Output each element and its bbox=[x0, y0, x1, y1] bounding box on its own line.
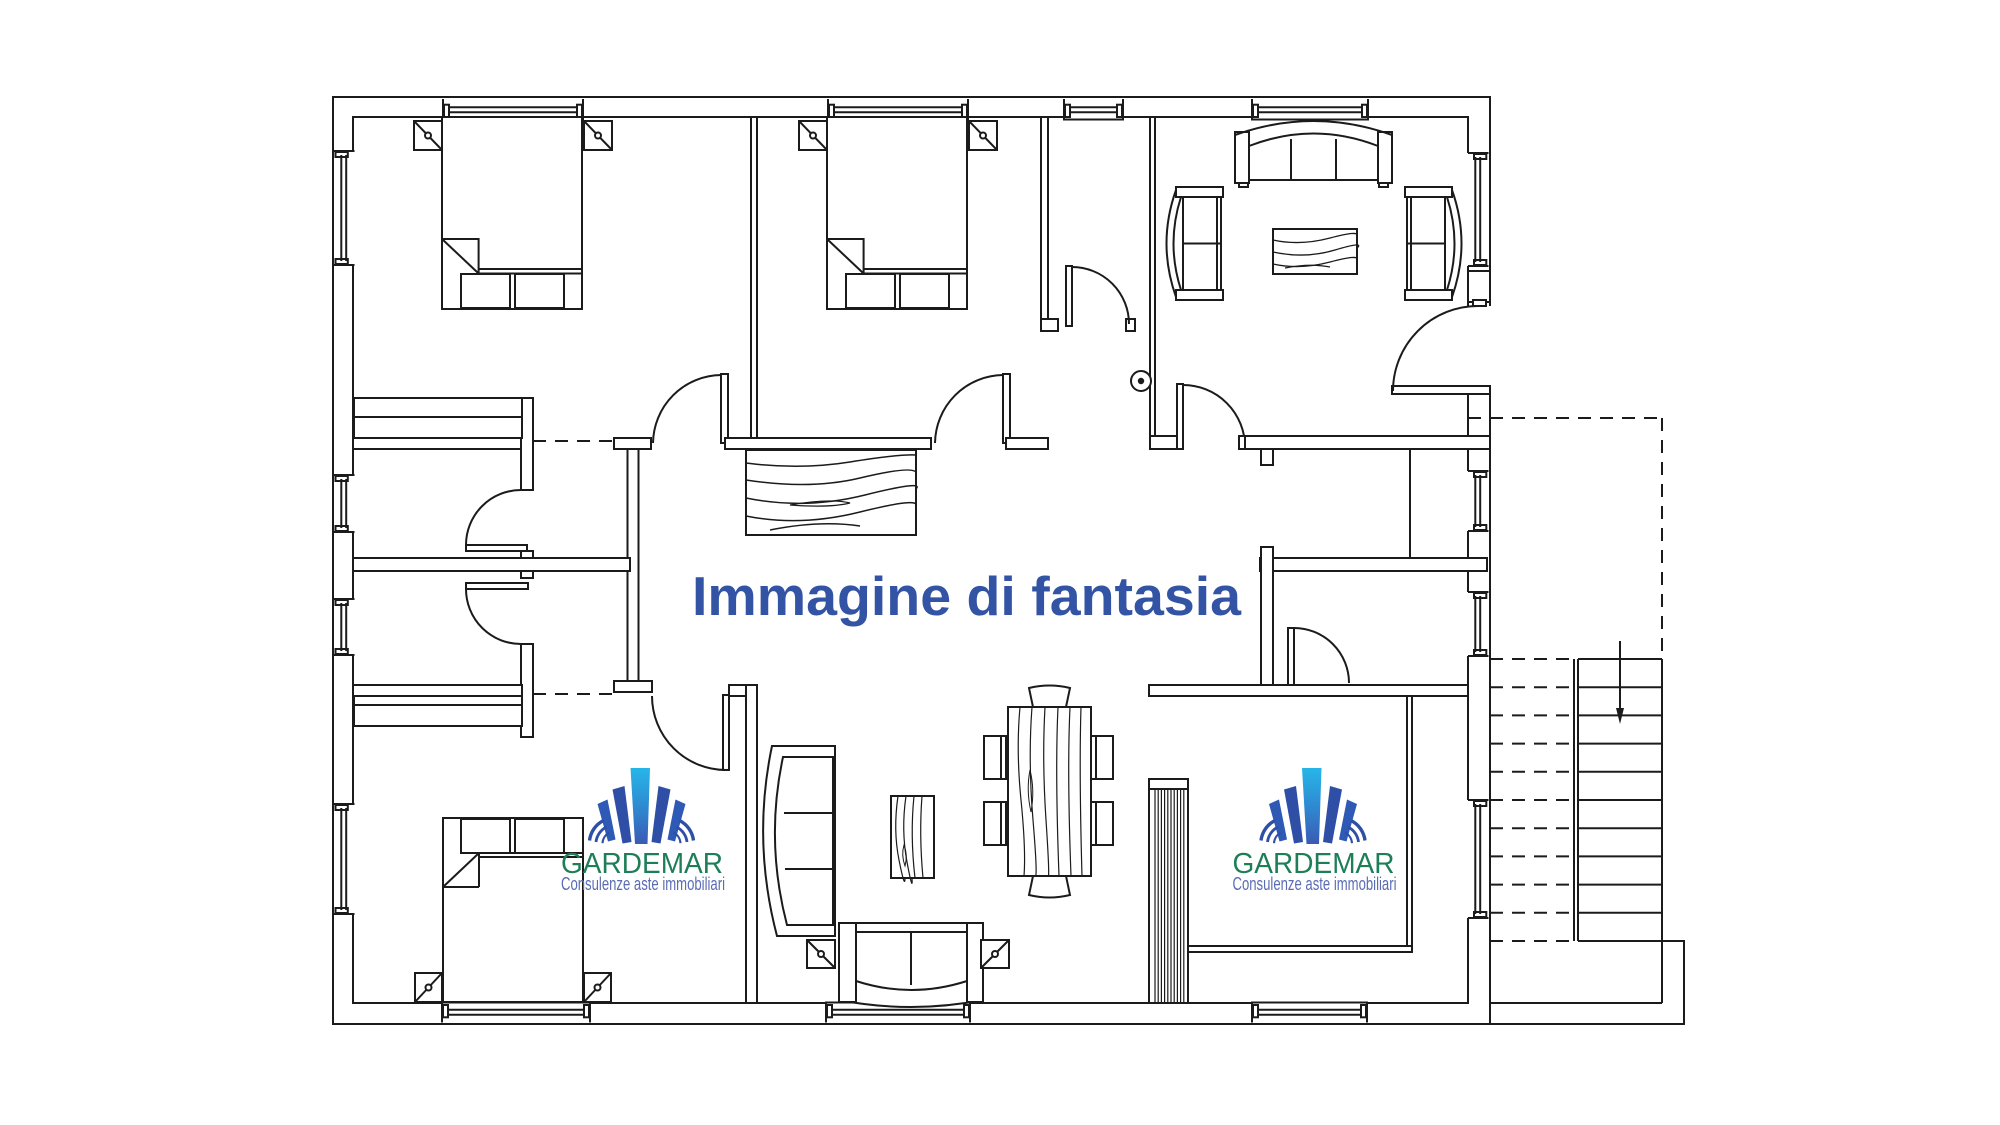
svg-text:Immagine di fantasia: Immagine di fantasia bbox=[692, 565, 1241, 627]
svg-text:Consulenze aste immobiliari: Consulenze aste immobiliari bbox=[561, 874, 725, 894]
